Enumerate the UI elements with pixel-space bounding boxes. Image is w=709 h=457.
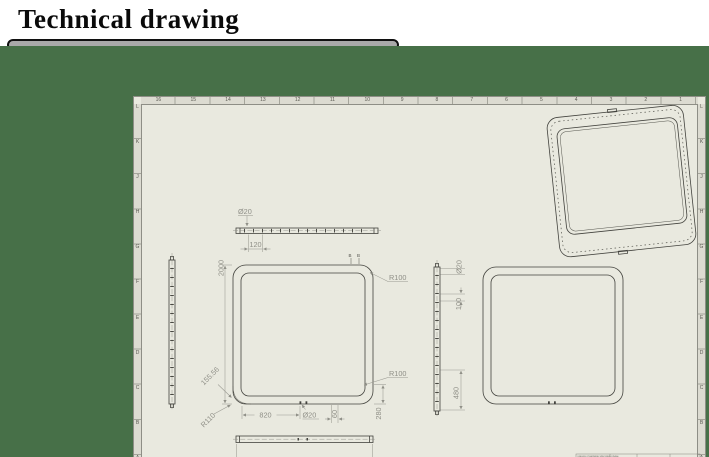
dim-radius-top: R100 xyxy=(389,273,406,282)
bottom-view xyxy=(233,436,376,443)
section-label-left: B xyxy=(349,253,352,258)
drawing-sheet: 16151413121110987654321 1615141312111098… xyxy=(133,96,706,457)
drawing-canvas: B B xyxy=(134,97,705,457)
back-view xyxy=(483,267,623,404)
dim-top-hole-dia: Ø20 xyxy=(238,207,252,216)
page-title: Technical drawing xyxy=(18,4,239,35)
dim-front-height: 2000 xyxy=(217,260,226,276)
isometric-view xyxy=(546,102,697,261)
dim-60: 60 xyxy=(330,410,339,418)
dimensions: Ø20 120 2000 R100 xyxy=(199,207,465,457)
left-side-view xyxy=(169,253,175,411)
dim-280: 280 xyxy=(374,407,383,419)
right-side-view xyxy=(434,260,440,418)
dim-bottom-offset: 820 xyxy=(259,411,271,420)
dim-bottom-hole-dia: Ø20 xyxy=(303,411,317,420)
page: Technical drawing 1615141312111098765432… xyxy=(0,0,709,457)
top-view xyxy=(233,228,381,234)
dim-side-hole-dia: Ø20 xyxy=(455,260,464,274)
dim-side-hole-pitch: 100 xyxy=(454,298,463,310)
dim-480: 480 xyxy=(452,387,461,399)
dim-corner-diagonal: 155.56 xyxy=(199,365,221,387)
section-label-right: B xyxy=(357,253,360,258)
front-view: B B xyxy=(233,253,373,404)
dim-top-hole-pitch: 120 xyxy=(249,240,261,249)
dim-radius-bottom: R100 xyxy=(389,369,406,378)
viewer-background: 16151413121110987654321 1615141312111098… xyxy=(0,46,709,457)
